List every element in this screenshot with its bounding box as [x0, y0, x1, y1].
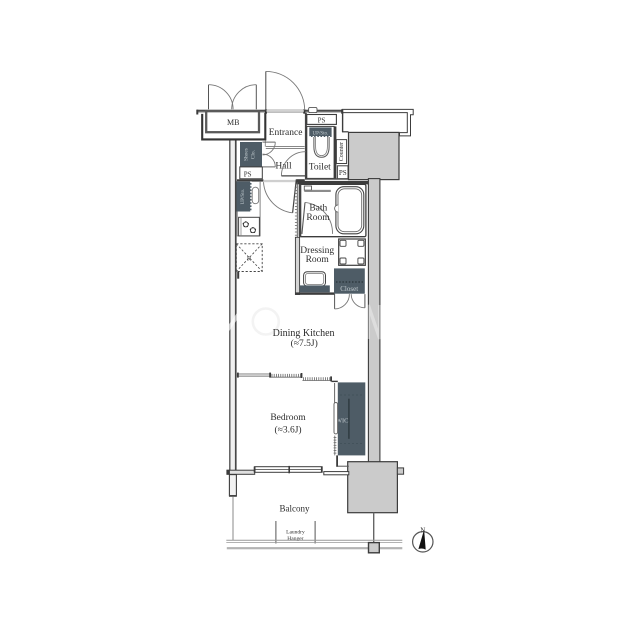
svg-text:R: R	[247, 255, 252, 262]
svg-text:Balcony: Balcony	[280, 504, 310, 514]
svg-text:Clo.: Clo.	[251, 150, 257, 159]
svg-text:Room: Room	[306, 255, 330, 265]
svg-text:N: N	[420, 527, 425, 535]
svg-text:Laundry: Laundry	[286, 530, 305, 536]
svg-text:UP/Sto.: UP/Sto.	[241, 189, 246, 205]
svg-text:Counter: Counter	[339, 142, 345, 161]
svg-text:PS: PS	[318, 116, 326, 124]
svg-text:Bedroom: Bedroom	[270, 413, 306, 423]
svg-text:UP/Sto.: UP/Sto.	[313, 132, 329, 137]
svg-text:Closet: Closet	[340, 285, 358, 293]
svg-text:PS: PS	[339, 169, 347, 177]
svg-text:MB: MB	[227, 118, 239, 127]
svg-text:Dining Kitchen: Dining Kitchen	[273, 328, 335, 339]
svg-text:(≈7.5J): (≈7.5J)	[291, 338, 318, 349]
svg-text:Shoes: Shoes	[244, 148, 250, 161]
svg-text:Bath: Bath	[309, 204, 327, 214]
svg-text:Entrance: Entrance	[269, 128, 303, 138]
svg-text:PS: PS	[244, 170, 252, 178]
svg-text:(≈3.6J): (≈3.6J)	[274, 425, 301, 436]
svg-text:Toilet: Toilet	[309, 162, 331, 172]
svg-text:Hanger: Hanger	[287, 536, 303, 542]
svg-text:Room: Room	[306, 213, 330, 223]
